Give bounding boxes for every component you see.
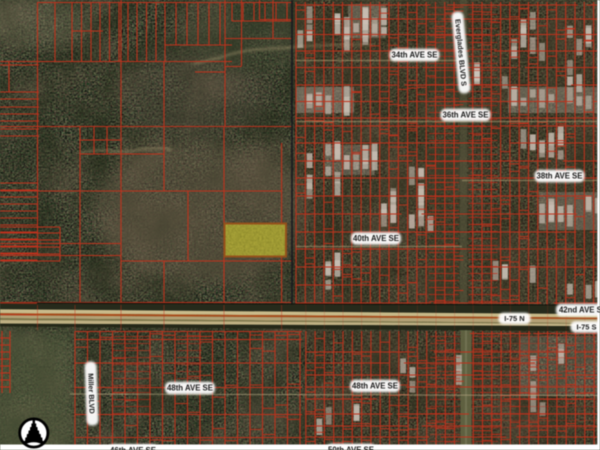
svg-text:I-75 S: I-75 S: [576, 323, 596, 332]
svg-text:42nd AVE SE: 42nd AVE SE: [559, 306, 600, 315]
svg-text:34th AVE SE: 34th AVE SE: [392, 51, 438, 60]
svg-text:48th AVE SE: 48th AVE SE: [167, 384, 213, 393]
svg-text:Miller BLVD: Miller BLVD: [86, 373, 96, 414]
svg-text:50th AVE SE: 50th AVE SE: [328, 446, 374, 450]
svg-text:38th AVE SE: 38th AVE SE: [537, 172, 583, 181]
svg-text:48th AVE SE: 48th AVE SE: [352, 382, 398, 391]
svg-text:46th AVE SE: 46th AVE SE: [110, 446, 156, 450]
svg-text:I-75 N: I-75 N: [504, 314, 524, 323]
svg-text:40th AVE SE: 40th AVE SE: [353, 234, 399, 243]
svg-text:36th AVE SE: 36th AVE SE: [443, 111, 489, 120]
